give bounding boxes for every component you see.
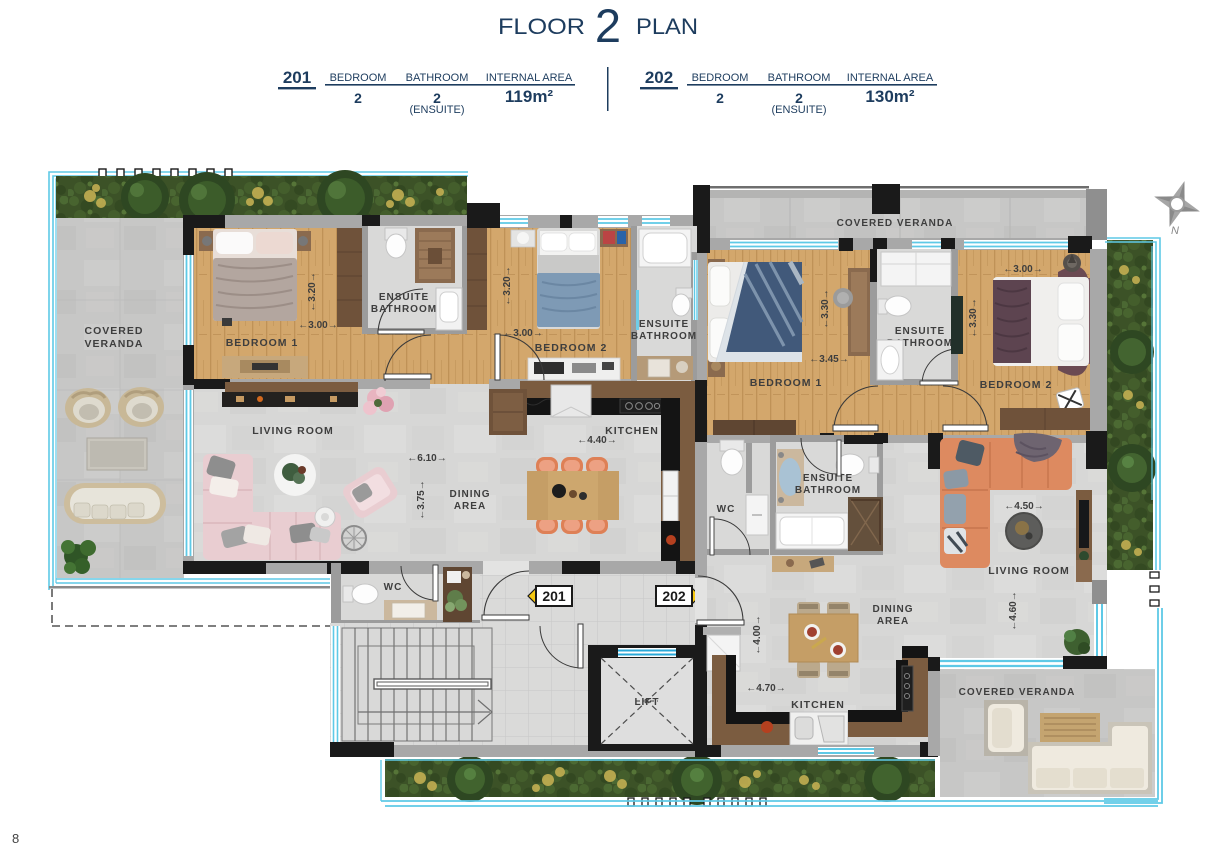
svg-text:WC: WC xyxy=(717,504,736,515)
svg-text:119m²: 119m² xyxy=(505,87,554,106)
svg-text:201: 201 xyxy=(283,68,311,87)
svg-text:←4.50→: ←4.50→ xyxy=(1004,501,1043,512)
svg-text:BEDROOM 2: BEDROOM 2 xyxy=(535,342,608,354)
svg-text:N: N xyxy=(1171,225,1179,237)
svg-text:2: 2 xyxy=(716,90,724,106)
svg-text:←4.00→: ←4.00→ xyxy=(752,615,763,654)
svg-text:LIFT: LIFT xyxy=(634,697,659,708)
svg-text:LIVING ROOM: LIVING ROOM xyxy=(988,565,1070,577)
svg-text:BEDROOM 1: BEDROOM 1 xyxy=(750,377,823,389)
svg-text:←3.00→: ←3.00→ xyxy=(503,328,542,339)
svg-text:2: 2 xyxy=(595,0,621,52)
svg-text:LIVING ROOM: LIVING ROOM xyxy=(252,425,334,437)
svg-text:BATHROOM: BATHROOM xyxy=(406,72,469,84)
svg-text:2: 2 xyxy=(354,90,362,106)
svg-text:AREA: AREA xyxy=(454,501,486,512)
svg-text:BEDROOM: BEDROOM xyxy=(692,72,749,84)
svg-text:WC: WC xyxy=(384,582,403,593)
svg-text:←3.30→: ←3.30→ xyxy=(968,298,979,337)
svg-text:←4.40→: ←4.40→ xyxy=(577,435,616,446)
svg-text:BATHROOM: BATHROOM xyxy=(795,485,861,496)
svg-text:←3.30→: ←3.30→ xyxy=(820,289,831,328)
svg-text:←3.00→: ←3.00→ xyxy=(298,320,337,331)
svg-text:BEDROOM 2: BEDROOM 2 xyxy=(980,379,1053,391)
svg-text:←4.70→: ←4.70→ xyxy=(746,683,785,694)
svg-text:←6.10→: ←6.10→ xyxy=(407,453,446,464)
svg-text:COVERED VERANDA: COVERED VERANDA xyxy=(837,218,954,229)
svg-text:BATHROOM: BATHROOM xyxy=(631,331,697,342)
svg-text:←4.60→: ←4.60→ xyxy=(1008,591,1019,630)
svg-text:DINING: DINING xyxy=(450,489,491,500)
svg-text:FLOOR: FLOOR xyxy=(498,14,585,39)
svg-text:←3.75→: ←3.75→ xyxy=(416,480,427,519)
svg-text:202: 202 xyxy=(662,588,686,604)
svg-text:BEDROOM: BEDROOM xyxy=(330,72,387,84)
svg-text:201: 201 xyxy=(542,588,566,604)
svg-text:←3.20→: ←3.20→ xyxy=(307,272,318,311)
svg-text:(ENSUITE): (ENSUITE) xyxy=(772,104,827,116)
svg-text:(ENSUITE): (ENSUITE) xyxy=(410,104,465,116)
svg-text:DINING: DINING xyxy=(873,604,914,615)
svg-text:←3.00→: ←3.00→ xyxy=(1003,264,1042,275)
svg-text:130m²: 130m² xyxy=(865,87,914,106)
svg-text:BATHROOM: BATHROOM xyxy=(371,304,437,315)
svg-text:ENSUITE: ENSUITE xyxy=(639,319,689,330)
svg-text:PLAN: PLAN xyxy=(636,14,698,39)
svg-text:COVERED VERANDA: COVERED VERANDA xyxy=(959,687,1076,698)
svg-text:COVERED: COVERED xyxy=(85,325,144,337)
svg-text:BATHROOM: BATHROOM xyxy=(768,72,831,84)
svg-text:202: 202 xyxy=(645,68,673,87)
svg-text:8: 8 xyxy=(12,831,19,846)
svg-text:VERANDA: VERANDA xyxy=(85,338,144,350)
svg-text:AREA: AREA xyxy=(877,616,909,627)
svg-text:ENSUITE: ENSUITE xyxy=(803,473,853,484)
svg-text:ENSUITE: ENSUITE xyxy=(895,326,945,337)
svg-text:KITCHEN: KITCHEN xyxy=(791,699,845,711)
svg-text:←3.45→: ←3.45→ xyxy=(809,354,848,365)
svg-text:←3.20→: ←3.20→ xyxy=(502,266,513,305)
svg-text:BEDROOM 1: BEDROOM 1 xyxy=(226,337,299,349)
svg-text:INTERNAL AREA: INTERNAL AREA xyxy=(847,72,934,84)
svg-text:INTERNAL AREA: INTERNAL AREA xyxy=(486,72,573,84)
